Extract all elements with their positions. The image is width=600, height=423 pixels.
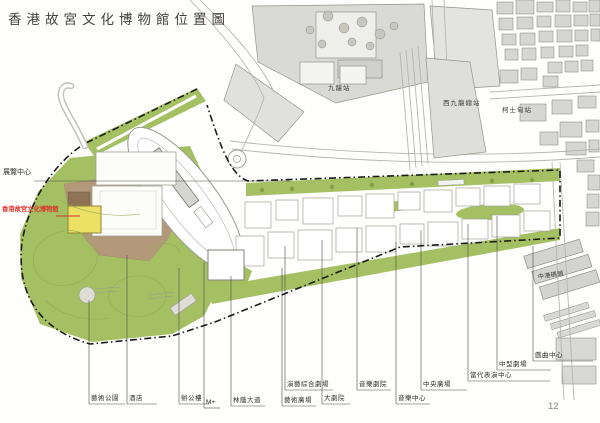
label-avenue: 林蔭大道	[233, 398, 261, 405]
label-medium-theatre: 中型劇場	[499, 362, 527, 369]
label-exhibition-centre: 展覽中心	[3, 169, 31, 176]
china-ferry-terminal-piers	[524, 237, 600, 301]
label-grand-theatre: 大劇院	[324, 396, 345, 403]
m-plus-building	[208, 250, 244, 280]
label-palace-museum: 香港故宮文化博物館	[2, 207, 59, 213]
label-central-square: 中央廣場	[423, 382, 451, 389]
page-number: 12	[548, 401, 559, 412]
label-m-plus: M+	[206, 400, 216, 407]
urban-blocks-northeast	[497, 0, 600, 73]
site-map-graphic	[0, 0, 600, 423]
label-office-building: 辦公樓	[181, 396, 202, 403]
label-art-park: 藝術公園	[91, 396, 119, 403]
label-austin-station: 柯士甸站	[502, 108, 532, 115]
breakwater-pier-inner	[61, 85, 85, 146]
label-kowloon-station: 九龍站	[328, 86, 351, 93]
venue-buildings	[236, 184, 550, 266]
label-contemporary-performance-centre: 當代表演中心	[470, 373, 512, 380]
label-musical-theatre: 音樂劇院	[359, 382, 387, 389]
label-lyric-theatre: 演藝綜合劇場	[287, 382, 329, 389]
label-west-kowloon-terminus: 西九龍總站	[443, 101, 481, 108]
label-music-centre: 音樂中心	[398, 396, 426, 403]
label-xiqu-centre: 戲曲中心	[535, 353, 563, 360]
band-pavilion	[438, 179, 464, 185]
service-building	[68, 192, 90, 206]
label-arts-plaza: 藝術廣場	[284, 398, 312, 405]
pier-fingers	[544, 300, 600, 340]
park-pavilion	[79, 287, 95, 303]
page-title: 香港故宮文化博物館位置圖	[8, 8, 230, 28]
label-hotel: 酒店	[129, 396, 143, 403]
document-page: 香港故宮文化博物館位置圖 九龍站 西九龍總站 柯士甸站 中港碼頭 展覽中心 香港…	[0, 0, 600, 423]
